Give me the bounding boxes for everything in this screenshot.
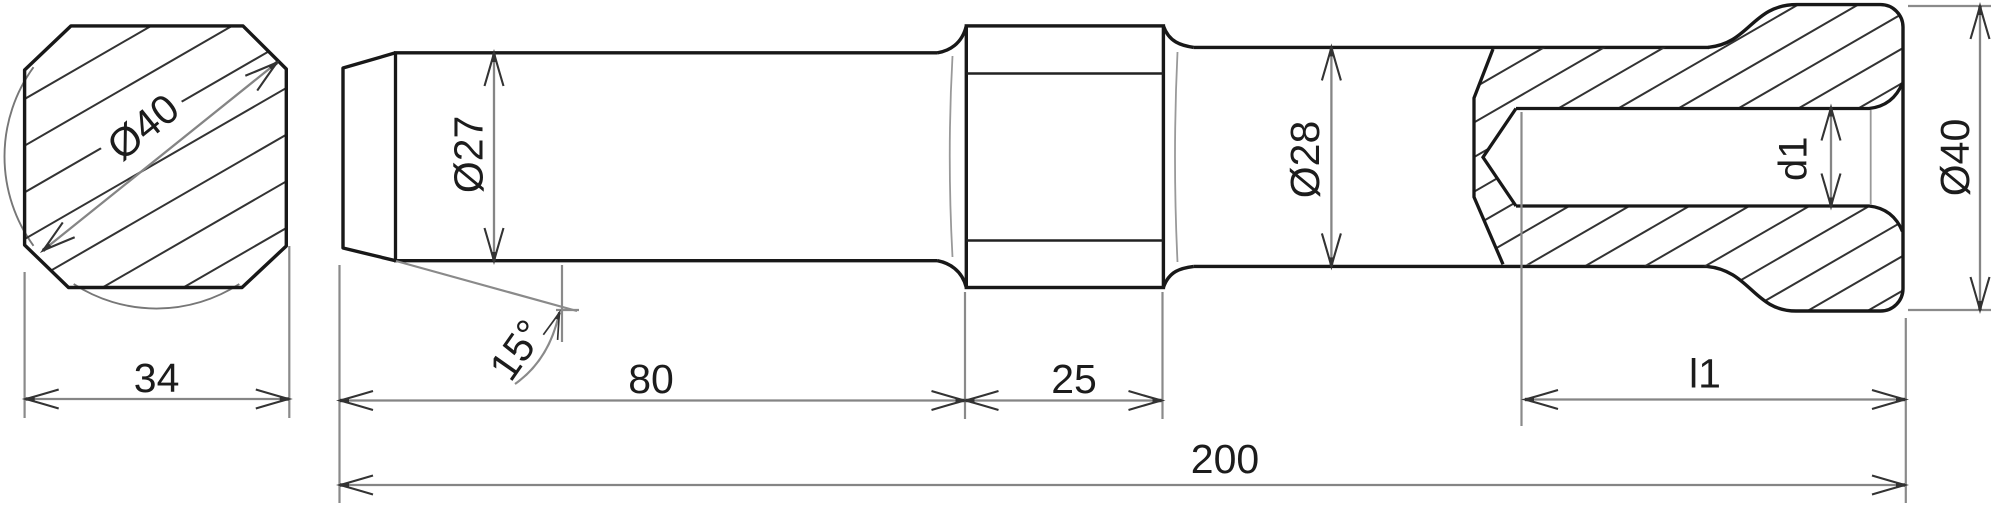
svg-text:200: 200 (1191, 436, 1259, 482)
svg-text:25: 25 (1051, 356, 1097, 402)
svg-text:34: 34 (134, 355, 180, 401)
svg-text:d1: d1 (1772, 136, 1816, 181)
svg-text:Ø28: Ø28 (1282, 121, 1328, 199)
svg-text:80: 80 (628, 356, 674, 402)
svg-text:Ø27: Ø27 (446, 116, 492, 194)
svg-text:l1: l1 (1689, 351, 1721, 397)
svg-text:Ø40: Ø40 (1932, 119, 1978, 197)
